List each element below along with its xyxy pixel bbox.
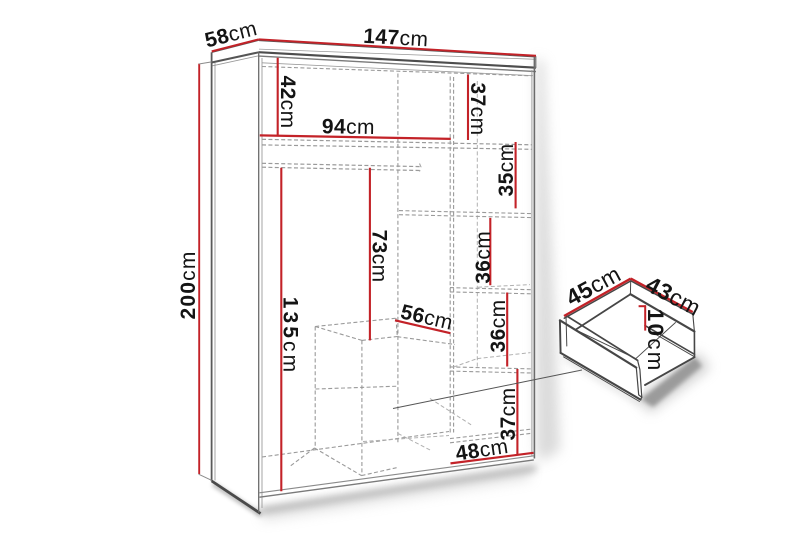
svg-text:37cm: 37cm xyxy=(497,388,520,441)
svg-text:37cm: 37cm xyxy=(466,83,489,136)
svg-text:94cm: 94cm xyxy=(322,115,375,139)
svg-text:35cm: 35cm xyxy=(495,144,518,197)
svg-text:73cm: 73cm xyxy=(368,230,391,283)
svg-text:135cm: 135cm xyxy=(279,297,302,376)
svg-text:42cm: 42cm xyxy=(276,76,299,129)
svg-text:36cm: 36cm xyxy=(472,231,495,284)
svg-text:36cm: 36cm xyxy=(487,300,510,353)
svg-text:147cm: 147cm xyxy=(363,25,429,52)
svg-text:10cm: 10cm xyxy=(643,309,668,373)
svg-text:200cm: 200cm xyxy=(177,250,200,319)
